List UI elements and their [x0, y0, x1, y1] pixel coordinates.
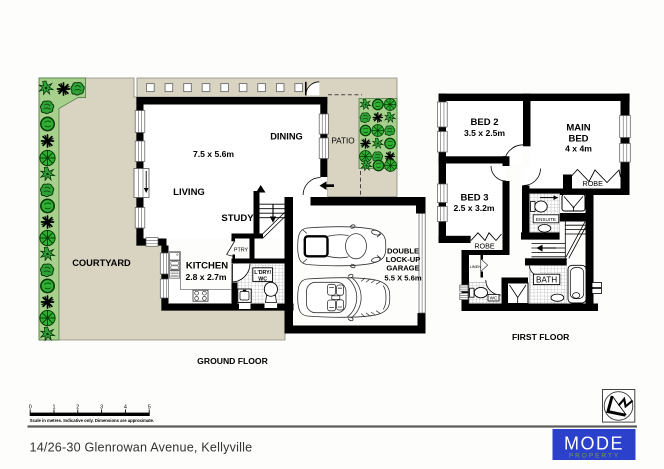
svg-text:COURTYARD: COURTYARD	[72, 258, 131, 268]
svg-text:4: 4	[124, 404, 127, 410]
svg-text:2.8 x 2.7m: 2.8 x 2.7m	[185, 272, 226, 282]
svg-text:L'DRY/: L'DRY/	[254, 270, 271, 276]
svg-text:5: 5	[148, 404, 151, 410]
svg-text:WC: WC	[258, 276, 267, 282]
svg-text:ENSUITE: ENSUITE	[536, 217, 556, 222]
svg-text:GARAGE: GARAGE	[386, 264, 419, 273]
svg-text:WC: WC	[490, 296, 498, 301]
svg-text:14/26-30 Glenrowan Avenue, Kel: 14/26-30 Glenrowan Avenue, Kellyville	[30, 441, 253, 455]
svg-text:2: 2	[76, 404, 79, 410]
svg-text:FIRST FLOOR: FIRST FLOOR	[512, 332, 570, 342]
svg-text:0: 0	[29, 404, 32, 410]
svg-text:DINING: DINING	[270, 131, 303, 141]
svg-text:GROUND FLOOR: GROUND FLOOR	[197, 356, 268, 366]
svg-text:3: 3	[100, 404, 103, 410]
svg-text:BED 2: BED 2	[471, 117, 499, 128]
svg-text:1: 1	[53, 404, 56, 410]
svg-text:LIVING: LIVING	[173, 187, 205, 198]
svg-text:KITCHEN: KITCHEN	[186, 261, 228, 272]
svg-text:PTRY: PTRY	[234, 247, 249, 253]
svg-text:ROBE: ROBE	[583, 179, 604, 188]
svg-text:4 x 4m: 4 x 4m	[565, 144, 592, 154]
svg-text:ROBE: ROBE	[474, 241, 495, 250]
svg-text:LINEN: LINEN	[470, 264, 482, 269]
svg-text:MAIN: MAIN	[566, 122, 590, 133]
svg-text:5.5 X 5.6m: 5.5 X 5.6m	[384, 274, 421, 283]
svg-text:Scale in metres. Indicative o: Scale in metres. Indicative only. Dimens…	[30, 418, 154, 423]
svg-text:MODE: MODE	[564, 434, 624, 454]
svg-text:STUDY: STUDY	[221, 213, 254, 224]
svg-text:BATH: BATH	[536, 275, 557, 284]
svg-text:PROPERTY: PROPERTY	[569, 453, 620, 460]
svg-text:7.5 x 5.6m: 7.5 x 5.6m	[193, 149, 234, 159]
svg-text:3.5 x 2.5m: 3.5 x 2.5m	[464, 128, 505, 138]
svg-text:2.5 x 3.2m: 2.5 x 3.2m	[453, 203, 494, 213]
svg-text:PATIO: PATIO	[331, 137, 354, 146]
